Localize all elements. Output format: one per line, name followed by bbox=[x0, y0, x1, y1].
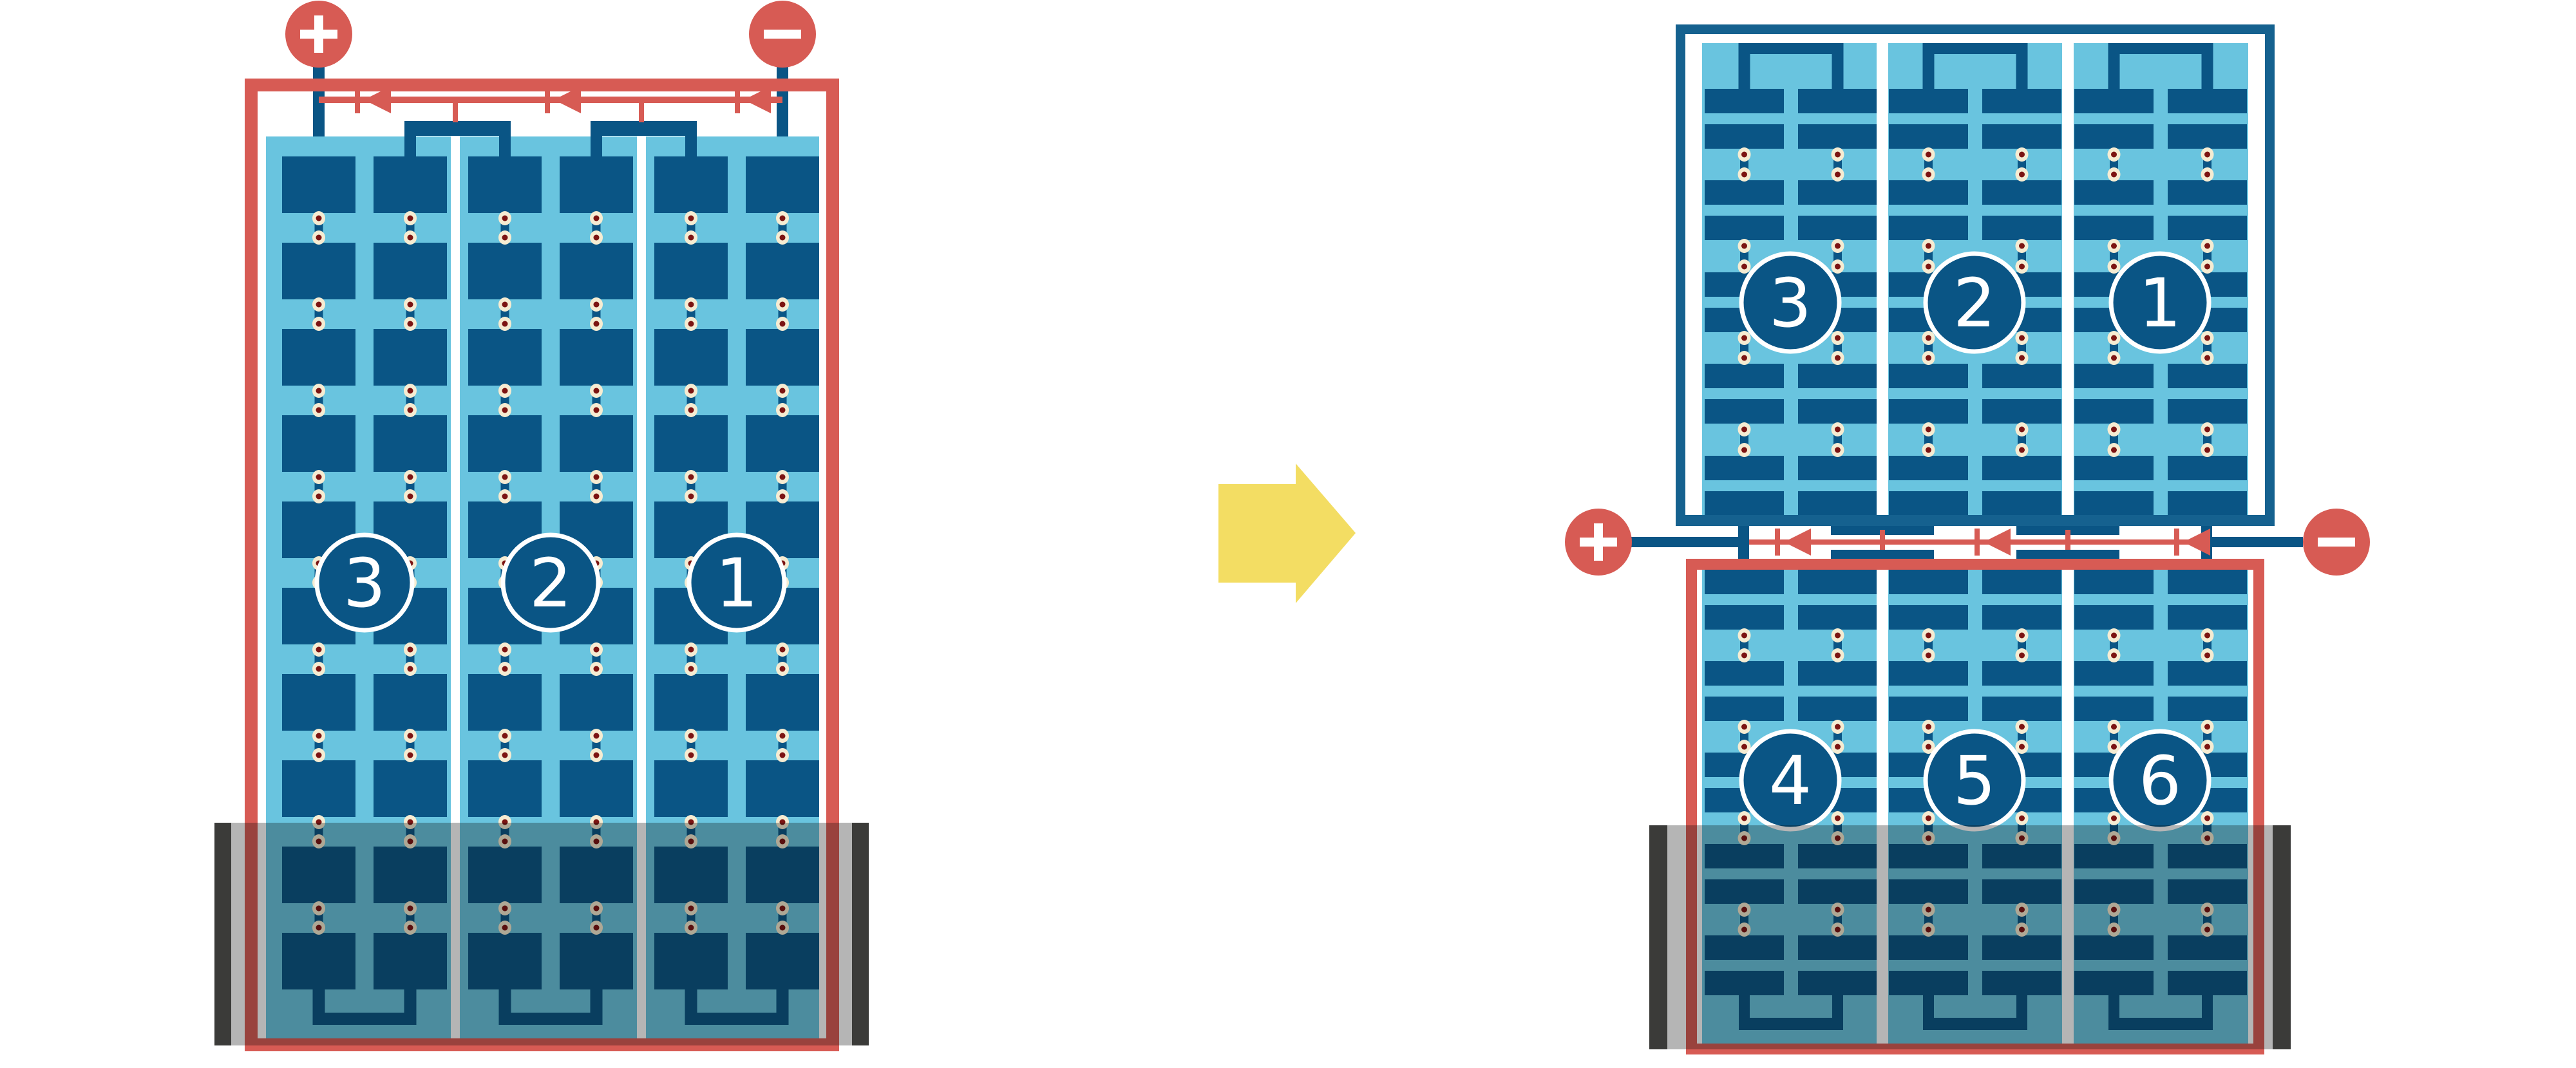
solder-dot-core bbox=[780, 321, 786, 327]
solder-dot-core bbox=[2019, 264, 2025, 270]
solar-cell bbox=[2074, 399, 2154, 424]
solder-dot-core bbox=[502, 474, 508, 480]
solder-dot-core bbox=[2019, 243, 2025, 249]
top-bridge-leg bbox=[1739, 54, 1750, 89]
solar-cell bbox=[2074, 491, 2154, 516]
solar-cell bbox=[1889, 216, 1968, 240]
solar-cell bbox=[1798, 180, 1877, 205]
solder-dot-core bbox=[2204, 335, 2210, 341]
solder-dot-core bbox=[1926, 653, 1931, 659]
solder-dot-core bbox=[594, 666, 600, 672]
terminal-symbol-bar bbox=[1594, 523, 1603, 561]
top-bridge-leg bbox=[2202, 54, 2213, 89]
solder-dot-core bbox=[502, 408, 508, 413]
solder-dot-core bbox=[408, 647, 413, 653]
solder-dot-core bbox=[316, 216, 322, 221]
bypass-diode-arrow-icon bbox=[1784, 529, 1811, 556]
bypass-diode-arrow-icon bbox=[1984, 529, 2011, 556]
solder-dot-core bbox=[1741, 724, 1747, 730]
solar-cell bbox=[2074, 364, 2154, 388]
solder-dot-core bbox=[502, 494, 508, 500]
solar-cell bbox=[1982, 89, 2061, 113]
solder-dot-core bbox=[1741, 633, 1747, 639]
solder-dot-core bbox=[594, 647, 600, 653]
solder-dot-core bbox=[688, 753, 694, 758]
solar-cell bbox=[1705, 89, 1784, 113]
solder-dot-core bbox=[2111, 724, 2117, 730]
shade-overlay bbox=[1649, 825, 2291, 1049]
module-frame-left bbox=[1676, 24, 1685, 526]
string-number-label: 1 bbox=[2139, 264, 2181, 342]
solar-cell bbox=[282, 415, 355, 472]
solder-dot-core bbox=[780, 647, 786, 653]
string-number-label: 2 bbox=[1953, 264, 1996, 342]
solar-cell bbox=[374, 329, 447, 386]
terminal-bus bbox=[1629, 537, 1749, 547]
solder-dot-core bbox=[2019, 816, 2025, 821]
solder-dot-core bbox=[2204, 152, 2210, 158]
solder-dot-core bbox=[2019, 335, 2025, 341]
solder-dot-core bbox=[1741, 152, 1747, 158]
solder-dot-core bbox=[688, 408, 694, 413]
solar-cell bbox=[560, 674, 633, 731]
solar-cell bbox=[1705, 605, 1784, 630]
solder-dot-core bbox=[502, 302, 508, 308]
solar-cell bbox=[2168, 364, 2247, 388]
solder-dot-core bbox=[316, 321, 322, 327]
transform-arrow bbox=[1218, 464, 1356, 603]
solder-dot-core bbox=[2019, 633, 2025, 639]
top-bridge-bar bbox=[404, 121, 511, 136]
solar-cell bbox=[282, 329, 355, 386]
solder-dot-core bbox=[1835, 633, 1841, 639]
solder-dot-core bbox=[780, 235, 786, 241]
diode-cathode-bar bbox=[2174, 529, 2179, 556]
module-frame-bottom-bar bbox=[1676, 515, 2275, 526]
solar-cell bbox=[2074, 570, 2154, 594]
string-number-label: 1 bbox=[715, 544, 758, 623]
solder-dot-core bbox=[316, 753, 322, 758]
solder-dot-core bbox=[2019, 355, 2025, 361]
solar-cell bbox=[1889, 399, 1968, 424]
solder-dot-core bbox=[1835, 264, 1841, 270]
string-gap bbox=[1877, 43, 1888, 515]
solder-dot-core bbox=[688, 494, 694, 500]
solder-dot-core bbox=[1835, 172, 1841, 178]
solar-cell bbox=[560, 329, 633, 386]
solar-cell bbox=[1705, 399, 1784, 424]
solar-cell bbox=[1889, 605, 1968, 630]
solder-dot-core bbox=[502, 216, 508, 221]
solar-cell bbox=[1798, 697, 1877, 721]
solder-dot-core bbox=[2019, 653, 2025, 659]
solar-cell bbox=[2074, 605, 2154, 630]
solder-dot-core bbox=[1741, 243, 1747, 249]
solder-dot-core bbox=[502, 647, 508, 653]
solar-cell bbox=[2168, 216, 2247, 240]
solar-cell bbox=[560, 760, 633, 817]
solder-dot-core bbox=[688, 321, 694, 327]
solder-dot-core bbox=[502, 666, 508, 672]
solder-dot-core bbox=[2019, 427, 2025, 433]
diagram-stage: 321321456 bbox=[0, 0, 2576, 1068]
bypass-diode-arrow-icon bbox=[2183, 529, 2210, 556]
solar-cell bbox=[1982, 216, 2061, 240]
top-bridge-leg bbox=[404, 136, 416, 158]
solder-dot-core bbox=[2111, 427, 2117, 433]
solder-dot-core bbox=[1741, 816, 1747, 821]
solar-cell bbox=[560, 415, 633, 472]
solder-dot-core bbox=[1835, 744, 1841, 750]
solder-dot-core bbox=[316, 494, 322, 500]
solder-dot-core bbox=[1741, 447, 1747, 453]
solder-dot-core bbox=[688, 647, 694, 653]
solar-cell bbox=[2168, 124, 2247, 149]
solar-cell bbox=[2074, 697, 2154, 721]
right-arrow-icon bbox=[1218, 464, 1356, 603]
solder-dot-core bbox=[1741, 427, 1747, 433]
solder-dot-core bbox=[688, 733, 694, 739]
solder-dot-core bbox=[2111, 744, 2117, 750]
solder-dot-core bbox=[408, 494, 413, 500]
solder-dot-core bbox=[1926, 335, 1931, 341]
solar-cell bbox=[746, 156, 819, 213]
solder-dot-core bbox=[594, 733, 600, 739]
solar-cell bbox=[374, 415, 447, 472]
solder-dot-core bbox=[408, 753, 413, 758]
solar-cell bbox=[2168, 697, 2247, 721]
solar-cell bbox=[2074, 661, 2154, 686]
solar-cell bbox=[746, 415, 819, 472]
solar-cell bbox=[746, 760, 819, 817]
solar-cell bbox=[1982, 364, 2061, 388]
solder-dot-core bbox=[780, 753, 786, 758]
solar-cell bbox=[654, 243, 728, 299]
solar-cell bbox=[1705, 364, 1784, 388]
right-bottom-module: 456 bbox=[1649, 550, 2291, 1054]
solder-dot-core bbox=[780, 494, 786, 500]
solar-cell bbox=[468, 674, 542, 731]
right-top-module: 321 bbox=[1676, 24, 2275, 535]
solder-dot-core bbox=[2111, 447, 2117, 453]
solder-dot-core bbox=[408, 474, 413, 480]
solder-dot-core bbox=[2111, 264, 2117, 270]
solder-dot-core bbox=[2204, 816, 2210, 821]
solder-dot-core bbox=[2019, 172, 2025, 178]
solder-dot-core bbox=[1926, 427, 1931, 433]
solar-cell bbox=[1705, 697, 1784, 721]
solder-dot-core bbox=[502, 321, 508, 327]
solar-module-shading-diagram: 321321456 bbox=[0, 0, 2576, 1068]
solar-cell bbox=[374, 243, 447, 299]
solder-dot-core bbox=[2204, 264, 2210, 270]
solar-cell bbox=[1982, 124, 2061, 149]
module-frame-right bbox=[2265, 24, 2275, 526]
solder-dot-core bbox=[408, 321, 413, 327]
solar-cell bbox=[2168, 661, 2247, 686]
solder-dot-core bbox=[2204, 172, 2210, 178]
solar-cell bbox=[1798, 124, 1877, 149]
solder-dot-core bbox=[2111, 243, 2117, 249]
solder-dot-core bbox=[1926, 816, 1931, 821]
solder-dot-core bbox=[502, 733, 508, 739]
solder-dot-core bbox=[2111, 816, 2117, 821]
module-frame-top bbox=[245, 79, 839, 91]
solder-dot-core bbox=[1926, 355, 1931, 361]
top-bridge-leg bbox=[1923, 54, 1935, 89]
solar-cell bbox=[1889, 180, 1968, 205]
solder-dot-core bbox=[594, 474, 600, 480]
shade-object-bar bbox=[852, 823, 869, 1045]
solar-cell bbox=[468, 156, 542, 213]
solder-dot-core bbox=[780, 216, 786, 221]
solder-dot-core bbox=[688, 388, 694, 394]
solar-cell bbox=[1705, 124, 1784, 149]
top-bridge-bar bbox=[591, 121, 697, 136]
solder-dot-core bbox=[316, 647, 322, 653]
top-bridge-leg bbox=[591, 136, 602, 158]
solar-cell bbox=[1798, 491, 1877, 516]
solder-dot-core bbox=[594, 494, 600, 500]
solder-dot-core bbox=[2019, 152, 2025, 158]
solar-cell bbox=[2074, 180, 2154, 205]
solder-dot-core bbox=[1835, 653, 1841, 659]
solder-dot-core bbox=[2019, 724, 2025, 730]
solder-dot-core bbox=[1741, 335, 1747, 341]
top-bridge-bar bbox=[1739, 43, 1844, 54]
solder-dot-core bbox=[1926, 447, 1931, 453]
solder-dot-core bbox=[594, 408, 600, 413]
solder-dot-core bbox=[688, 666, 694, 672]
solar-cell bbox=[2074, 456, 2154, 480]
solder-dot-core bbox=[502, 235, 508, 241]
diode-cathode-bar bbox=[1975, 529, 1980, 556]
solder-dot-core bbox=[1835, 427, 1841, 433]
solar-cell bbox=[374, 156, 447, 213]
solder-dot-core bbox=[594, 302, 600, 308]
solar-cell bbox=[2168, 399, 2247, 424]
solar-cell bbox=[1889, 661, 1968, 686]
solar-cell bbox=[1798, 570, 1877, 594]
solar-cell bbox=[1982, 661, 2061, 686]
solder-dot-core bbox=[2204, 447, 2210, 453]
solar-cell bbox=[1889, 89, 1968, 113]
solder-dot-core bbox=[408, 216, 413, 221]
top-bridge-bar bbox=[2108, 43, 2213, 54]
solar-cell bbox=[1982, 399, 2061, 424]
solar-cell bbox=[1982, 180, 2061, 205]
solar-cell bbox=[468, 760, 542, 817]
module-frame-top bbox=[1686, 559, 2264, 570]
solder-dot-core bbox=[1835, 816, 1841, 821]
string-number-label: 2 bbox=[529, 544, 572, 623]
solar-cell bbox=[2074, 216, 2154, 240]
terminal-bus bbox=[2207, 537, 2303, 547]
solder-dot-core bbox=[1741, 653, 1747, 659]
solar-cell bbox=[1982, 456, 2061, 480]
solder-dot-core bbox=[502, 388, 508, 394]
solder-dot-core bbox=[594, 216, 600, 221]
solar-cell bbox=[1798, 605, 1877, 630]
terminal-symbol-bar bbox=[2318, 538, 2355, 547]
solar-cell bbox=[374, 674, 447, 731]
solar-cell bbox=[746, 243, 819, 299]
solder-dot-core bbox=[594, 753, 600, 758]
solar-cell bbox=[1705, 180, 1784, 205]
solar-cell bbox=[1705, 491, 1784, 516]
top-bridge-leg bbox=[1832, 54, 1844, 89]
solar-cell bbox=[2074, 89, 2154, 113]
solar-cell bbox=[654, 674, 728, 731]
solder-dot-core bbox=[1926, 264, 1931, 270]
solder-dot-core bbox=[316, 388, 322, 394]
diode-tap bbox=[453, 103, 458, 122]
solder-dot-core bbox=[316, 474, 322, 480]
solar-cell bbox=[1798, 216, 1877, 240]
top-bridge-leg bbox=[2016, 54, 2028, 89]
solder-dot-core bbox=[2204, 653, 2210, 659]
string-number-label: 3 bbox=[1769, 264, 1812, 342]
solar-cell bbox=[2168, 180, 2247, 205]
solder-dot-core bbox=[688, 235, 694, 241]
solder-dot-core bbox=[316, 733, 322, 739]
solar-cell bbox=[2074, 124, 2154, 149]
solder-dot-core bbox=[316, 302, 322, 308]
solder-dot-core bbox=[2204, 355, 2210, 361]
top-bridge-leg bbox=[2108, 54, 2120, 89]
solder-dot-core bbox=[2204, 744, 2210, 750]
shade-overlay bbox=[214, 823, 869, 1045]
solar-cell bbox=[1705, 570, 1784, 594]
terminal-symbol-bar bbox=[314, 15, 323, 53]
solar-cell bbox=[1889, 364, 1968, 388]
solder-dot-core bbox=[1741, 744, 1747, 750]
solder-dot-core bbox=[780, 733, 786, 739]
left-module: 321 bbox=[214, 1, 869, 1051]
solder-dot-core bbox=[1835, 243, 1841, 249]
solar-cell bbox=[282, 156, 355, 213]
solder-dot-core bbox=[2111, 355, 2117, 361]
solder-dot-core bbox=[1835, 335, 1841, 341]
solder-dot-core bbox=[2111, 335, 2117, 341]
top-bridge-bar bbox=[1923, 43, 2028, 54]
solar-cell bbox=[560, 156, 633, 213]
solder-dot-core bbox=[1741, 355, 1747, 361]
solar-cell bbox=[2168, 491, 2247, 516]
solder-dot-core bbox=[688, 216, 694, 221]
top-bridge-leg bbox=[685, 136, 697, 158]
solder-dot-core bbox=[1926, 172, 1931, 178]
solar-cell bbox=[282, 243, 355, 299]
solar-cell bbox=[1705, 456, 1784, 480]
solder-dot-core bbox=[780, 302, 786, 308]
solar-cell bbox=[654, 156, 728, 213]
diode-cathode-bar bbox=[545, 86, 550, 113]
solar-cell bbox=[1889, 124, 1968, 149]
solar-cell bbox=[654, 415, 728, 472]
solar-cell bbox=[468, 243, 542, 299]
solder-dot-core bbox=[1926, 152, 1931, 158]
top-bridge-leg bbox=[499, 136, 511, 158]
solder-dot-core bbox=[1926, 744, 1931, 750]
solar-cell bbox=[1982, 697, 2061, 721]
solder-dot-core bbox=[2204, 724, 2210, 730]
solder-dot-core bbox=[2019, 744, 2025, 750]
solar-cell bbox=[1798, 661, 1877, 686]
string-number-label: 6 bbox=[2139, 742, 2181, 820]
solar-cell bbox=[468, 415, 542, 472]
solder-dot-core bbox=[316, 666, 322, 672]
solder-dot-core bbox=[1741, 172, 1747, 178]
solder-dot-core bbox=[2019, 447, 2025, 453]
diode-cathode-bar bbox=[355, 86, 360, 113]
solar-cell bbox=[282, 760, 355, 817]
solder-dot-core bbox=[316, 235, 322, 241]
string-gap bbox=[2062, 43, 2074, 515]
solder-dot-core bbox=[780, 408, 786, 413]
solder-dot-core bbox=[688, 474, 694, 480]
string-number-label: 4 bbox=[1769, 742, 1812, 820]
solder-dot-core bbox=[408, 666, 413, 672]
bus-stub bbox=[1738, 526, 1749, 559]
solar-cell bbox=[2168, 605, 2247, 630]
solar-cell bbox=[1982, 491, 2061, 516]
solar-cell bbox=[1705, 216, 1784, 240]
solder-dot-core bbox=[780, 666, 786, 672]
solar-cell bbox=[1889, 491, 1968, 516]
solder-dot-core bbox=[1741, 264, 1747, 270]
solder-dot-core bbox=[1926, 724, 1931, 730]
solder-dot-core bbox=[408, 408, 413, 413]
interconnect-tab bbox=[1831, 550, 1934, 559]
solder-dot-core bbox=[2111, 172, 2117, 178]
solder-dot-core bbox=[2204, 427, 2210, 433]
solar-cell bbox=[1798, 399, 1877, 424]
solder-dot-core bbox=[408, 388, 413, 394]
solar-cell bbox=[2168, 456, 2247, 480]
solder-dot-core bbox=[594, 388, 600, 394]
solar-cell bbox=[1798, 364, 1877, 388]
solder-dot-core bbox=[1835, 355, 1841, 361]
solder-dot-core bbox=[2111, 633, 2117, 639]
solder-dot-core bbox=[780, 388, 786, 394]
solar-cell bbox=[746, 674, 819, 731]
shade-object-bar bbox=[2273, 825, 2291, 1049]
solar-cell bbox=[654, 760, 728, 817]
solar-cell bbox=[1889, 697, 1968, 721]
solar-cell bbox=[746, 329, 819, 386]
solder-dot-core bbox=[780, 474, 786, 480]
shade-object-bar bbox=[1649, 825, 1667, 1049]
solder-dot-core bbox=[2111, 653, 2117, 659]
terminal-symbol-bar bbox=[764, 30, 801, 39]
module-frame-top bbox=[1676, 24, 2275, 34]
solder-dot-core bbox=[1835, 724, 1841, 730]
solder-dot-core bbox=[594, 235, 600, 241]
solar-cell bbox=[1705, 661, 1784, 686]
solar-cell bbox=[374, 760, 447, 817]
solar-cell bbox=[1798, 89, 1877, 113]
solar-cell bbox=[654, 329, 728, 386]
solar-cell bbox=[1982, 570, 2061, 594]
solder-dot-core bbox=[1926, 633, 1931, 639]
diode-cathode-bar bbox=[735, 86, 740, 113]
solder-dot-core bbox=[1835, 152, 1841, 158]
solar-cell bbox=[560, 243, 633, 299]
string-number-label: 3 bbox=[343, 544, 386, 623]
diode-tap bbox=[639, 103, 644, 122]
solder-dot-core bbox=[2204, 633, 2210, 639]
